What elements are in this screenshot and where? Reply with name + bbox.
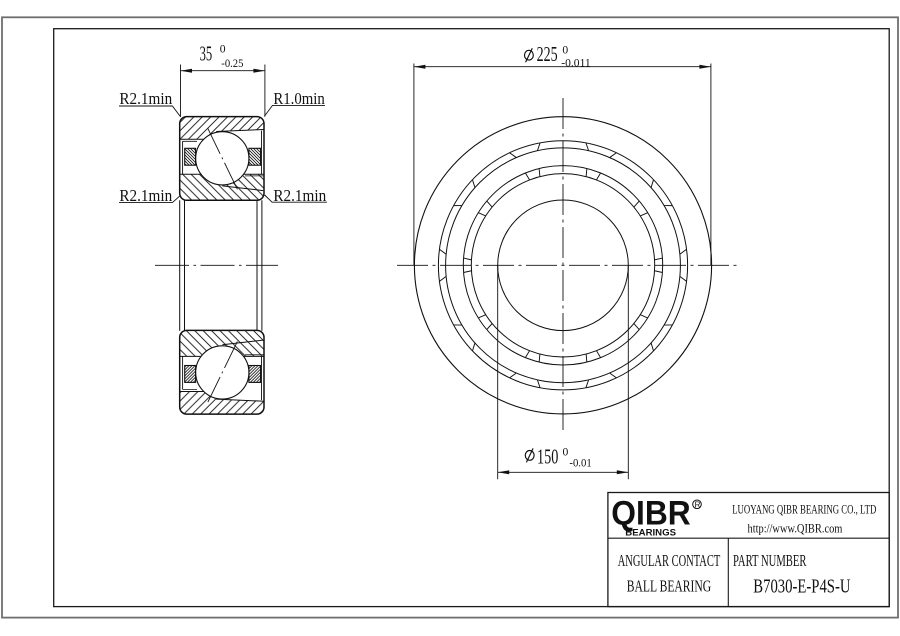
svg-text:0: 0 xyxy=(563,444,569,458)
svg-text:0: 0 xyxy=(220,41,226,55)
svg-text:-0.011: -0.011 xyxy=(561,56,590,70)
svg-text:PART NUMBER: PART NUMBER xyxy=(733,551,806,570)
svg-text:35: 35 xyxy=(200,42,213,66)
svg-text:http://www.QIBR.com: http://www.QIBR.com xyxy=(748,521,843,536)
svg-text:R2.1min: R2.1min xyxy=(119,186,172,205)
svg-text:BALL BEARING: BALL BEARING xyxy=(627,577,711,596)
svg-text:R: R xyxy=(695,500,701,509)
svg-text:R2.1min: R2.1min xyxy=(119,89,172,108)
svg-text:-0.25: -0.25 xyxy=(221,56,243,70)
svg-text:ANGULAR CONTACT: ANGULAR CONTACT xyxy=(618,551,721,570)
svg-text:225: 225 xyxy=(537,42,558,66)
svg-text:0: 0 xyxy=(562,42,568,56)
svg-text:150: 150 xyxy=(537,444,558,468)
svg-text:B7030-E-P4S-U: B7030-E-P4S-U xyxy=(753,576,851,598)
svg-text:BEARINGS: BEARINGS xyxy=(625,527,676,537)
svg-text:LUOYANG QIBR BEARING CO., LTD: LUOYANG QIBR BEARING CO., LTD xyxy=(732,502,876,517)
svg-text:-0.01: -0.01 xyxy=(569,456,591,470)
